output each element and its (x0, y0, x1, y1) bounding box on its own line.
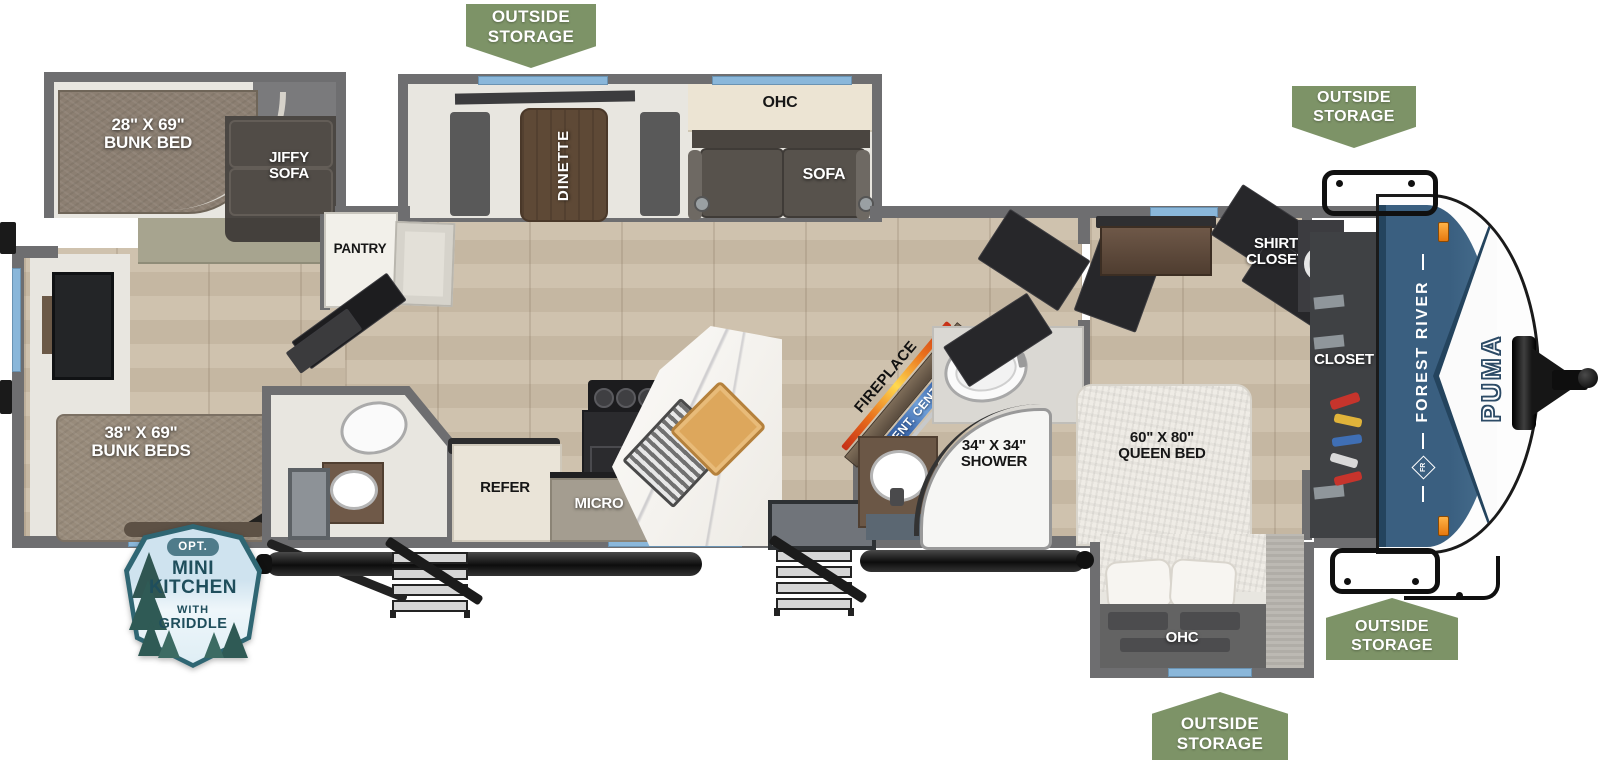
brand-monogram: FR (1420, 462, 1427, 471)
outside-storage-badge-bedroom: OUTSIDE STORAGE (1152, 692, 1288, 760)
dinette-bench (450, 112, 490, 216)
bunk-bed-single-label: 28" X 69" BUNK BED (78, 116, 218, 153)
queen-bed-label: 60" X 80" QUEEN BED (1096, 430, 1228, 462)
pantry-label: PANTRY (320, 242, 400, 257)
outside-storage-badge-front-lower: OUTSIDE STORAGE (1326, 598, 1458, 660)
brand-dash (1422, 254, 1424, 270)
marker-light (1438, 516, 1449, 536)
closet-label: CLOSET (1306, 352, 1382, 368)
ohc-bedroom-panel (1108, 612, 1168, 630)
frame-bolt (1336, 180, 1343, 187)
awning-tube-end (1076, 551, 1094, 569)
sofa-cushion (700, 148, 784, 218)
mini-kitchen-badge: OPT. MINI KITCHEN WITH GRIDDLE (124, 524, 262, 668)
ohc-bedroom-panel (1180, 612, 1240, 630)
ohc-living-label: OHC (742, 94, 818, 111)
rear-bumper-stub (0, 380, 12, 414)
bedroom-dresser (1100, 226, 1212, 276)
awning-tube-bedroom (860, 550, 1085, 572)
step-foot (464, 610, 470, 618)
queen-bed (1076, 384, 1252, 546)
brand-make: FOREST RIVER (1414, 280, 1432, 422)
bunk-beds-double-label: 38" X 69" BUNK BEDS (66, 424, 216, 461)
step-foot (390, 610, 396, 618)
hitch-ball-knob (1578, 368, 1598, 388)
window-rear-left (12, 268, 21, 372)
step-tread (392, 600, 468, 612)
step-foot (848, 608, 854, 616)
rear-bath-mirror (288, 468, 330, 540)
brand-dash (1422, 486, 1424, 502)
window-bedroom-slide (1168, 668, 1252, 677)
sofa-cupholder (694, 196, 710, 212)
bunk-room-tv (52, 272, 114, 380)
step-tread (776, 598, 852, 610)
awning-tube-main (266, 552, 702, 576)
rear-sink (330, 470, 378, 510)
bunk-room-tv-mount (42, 296, 52, 354)
window-dinette-right (712, 76, 852, 85)
bed-skirt-band (1266, 534, 1304, 668)
ohc-bedroom-label: OHC (1140, 630, 1224, 646)
option-tag: OPT. (167, 538, 219, 556)
entry-steps (770, 546, 860, 616)
bath-faucet (890, 488, 904, 506)
rear-bumper-stub (0, 222, 16, 254)
frame-bolt (1408, 180, 1415, 187)
option-subtitle-griddle: GRIDDLE (133, 616, 253, 632)
option-subtitle-with: WITH (133, 604, 253, 616)
breakaway-cable (1404, 556, 1500, 600)
brand-monogram-diamond: FR (1411, 455, 1435, 479)
refer-label: REFER (468, 480, 542, 496)
brand-model: PUMA (1476, 238, 1506, 518)
dinette-bench (640, 112, 680, 216)
dinette-table: DINETTE (520, 108, 608, 222)
outside-storage-badge-top: OUTSIDE STORAGE (466, 4, 596, 68)
option-title: MINI KITCHEN (133, 560, 253, 597)
cable-end (1456, 592, 1463, 599)
sofa-back (692, 130, 870, 148)
frame-bracket-top (1322, 170, 1438, 216)
step-foot (774, 608, 780, 616)
window-dinette-left (478, 76, 608, 85)
wall-top-left-cap (12, 246, 58, 258)
marker-light (1438, 222, 1449, 242)
stove-burner (616, 388, 636, 408)
stove-burner (594, 388, 614, 408)
shower-label: 34" X 34" SHOWER (944, 438, 1044, 470)
jiffy-sofa-label: JIFFY SOFA (248, 150, 330, 182)
floorplan-canvas: 28" X 69" BUNK BED JIFFY SOFA DINETTE OH… (0, 0, 1600, 764)
frame-bolt (1344, 578, 1351, 585)
outside-storage-badge-front-upper: OUTSIDE STORAGE (1292, 86, 1416, 148)
entry-steps (386, 548, 476, 618)
brand-make-row: FR FOREST RIVER (1410, 198, 1436, 554)
sofa-label: SOFA (788, 166, 860, 183)
brand-dash (1422, 433, 1424, 449)
dinette-label: DINETTE (555, 129, 572, 200)
micro-label: MICRO (560, 496, 638, 512)
wall-bedroom-divider-top (1078, 216, 1090, 244)
